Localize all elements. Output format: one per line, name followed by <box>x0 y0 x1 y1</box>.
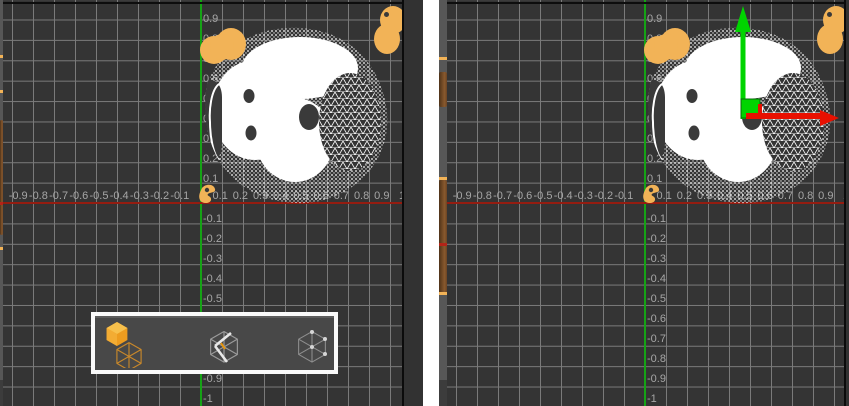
y-axis-tick-label: -0.4 <box>203 273 233 285</box>
viewport-edge-render-sliver <box>439 0 447 406</box>
x-axis-tick-label: -0.1 <box>609 190 639 202</box>
translate-gizmo <box>727 0 846 140</box>
grid-top-border <box>3 2 402 4</box>
selected-region-origin <box>196 182 220 206</box>
y-axis-tick-label: -0.1 <box>647 213 677 225</box>
viewport-edge-render-sliver <box>0 0 3 406</box>
vertex-select-mode-button[interactable] <box>287 319 337 367</box>
y-axis-tick-label: -1 <box>647 393 677 405</box>
gizmo-x-axis-handle[interactable] <box>746 104 839 126</box>
y-axis-tick-label: -0.2 <box>203 233 233 245</box>
x-axis-tick-label: -0.1 <box>165 190 195 202</box>
face-select-mode-button[interactable] <box>99 319 149 367</box>
viewport-left[interactable]: -0.9-0.8-0.7-0.6-0.5-0.4-0.3-0.2-0.10.10… <box>0 0 423 406</box>
faceted-hexagon-icon <box>107 322 141 368</box>
y-axis-tick-label: -0.8 <box>647 353 677 365</box>
y-axis-tick-label: -0.9 <box>203 373 233 385</box>
y-axis-tick-label: -0.5 <box>203 293 233 305</box>
viewport-right[interactable]: -0.9-0.8-0.7-0.6-0.5-0.4-0.3-0.2-0.10.10… <box>439 0 849 406</box>
y-axis-tick-label: -0.1 <box>203 213 233 225</box>
selection-mode-toolbar <box>91 312 338 374</box>
y-axis-tick-label: -0.5 <box>647 293 677 305</box>
y-axis-tick-label: -0.3 <box>203 253 233 265</box>
y-axis-tick-label: -0.4 <box>647 273 677 285</box>
grid-plane-right[interactable]: -0.9-0.8-0.7-0.6-0.5-0.4-0.3-0.2-0.10.10… <box>447 0 846 406</box>
selected-region-ear-left <box>200 28 248 66</box>
y-axis-tick-label: -0.7 <box>647 333 677 345</box>
selected-region-ear-right <box>372 6 404 58</box>
y-axis-tick-label: -0.2 <box>647 233 677 245</box>
y-axis-tick-label: -0.3 <box>647 253 677 265</box>
y-axis-tick-label: -0.6 <box>647 313 677 325</box>
selected-region-origin <box>640 182 664 206</box>
hexagon-edges-icon <box>211 332 238 363</box>
hexagon-vertices-icon <box>299 330 327 362</box>
y-axis-tick-label: -1 <box>203 393 233 405</box>
selected-region-ear-left <box>644 28 692 66</box>
edge-select-mode-button[interactable] <box>199 319 249 367</box>
y-axis-tick-label: -0.9 <box>647 373 677 385</box>
